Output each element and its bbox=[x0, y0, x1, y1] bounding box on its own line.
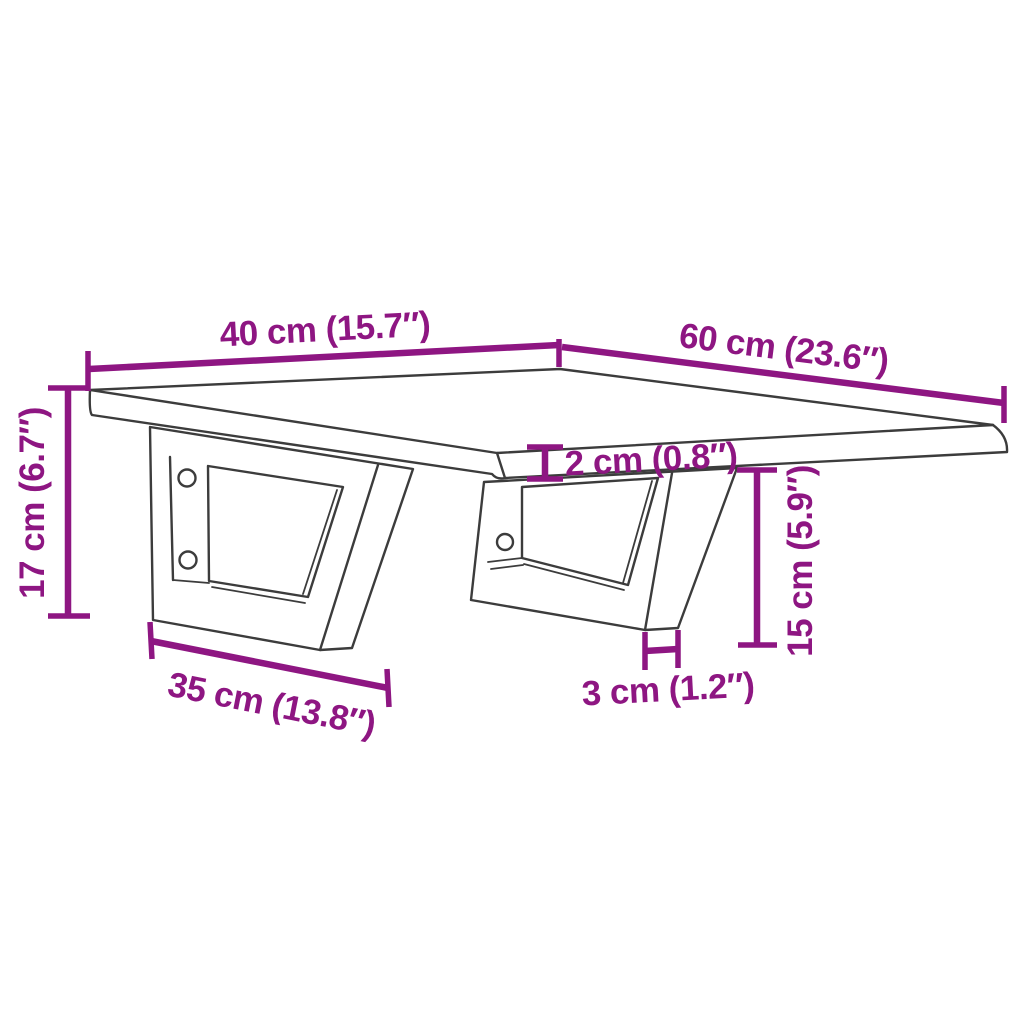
label-bracket-height: 17 cm (6.7″) bbox=[13, 407, 52, 599]
dimension-line-bracket-height bbox=[48, 388, 90, 616]
line-art bbox=[90, 369, 1007, 650]
left-bracket bbox=[150, 427, 413, 650]
label-top-width: 40 cm (15.7″) bbox=[219, 305, 431, 355]
product-dimension-diagram: 40 cm (15.7″) 60 cm (23.6″) 17 cm (6.7″)… bbox=[0, 0, 1024, 1024]
dimension-line-bracket-drop bbox=[737, 470, 777, 645]
dimension-line-strip-width bbox=[645, 630, 678, 670]
label-bracket-drop: 15 cm (5.9″) bbox=[781, 465, 820, 657]
screw-hole bbox=[180, 552, 197, 569]
label-top-depth: 60 cm (23.6″) bbox=[677, 316, 891, 381]
screw-hole bbox=[179, 470, 196, 487]
right-bracket bbox=[471, 468, 737, 630]
diagram-svg: 40 cm (15.7″) 60 cm (23.6″) 17 cm (6.7″)… bbox=[0, 0, 1024, 1024]
screw-hole bbox=[497, 534, 513, 550]
label-strip-width: 3 cm (1.2″) bbox=[581, 666, 756, 714]
